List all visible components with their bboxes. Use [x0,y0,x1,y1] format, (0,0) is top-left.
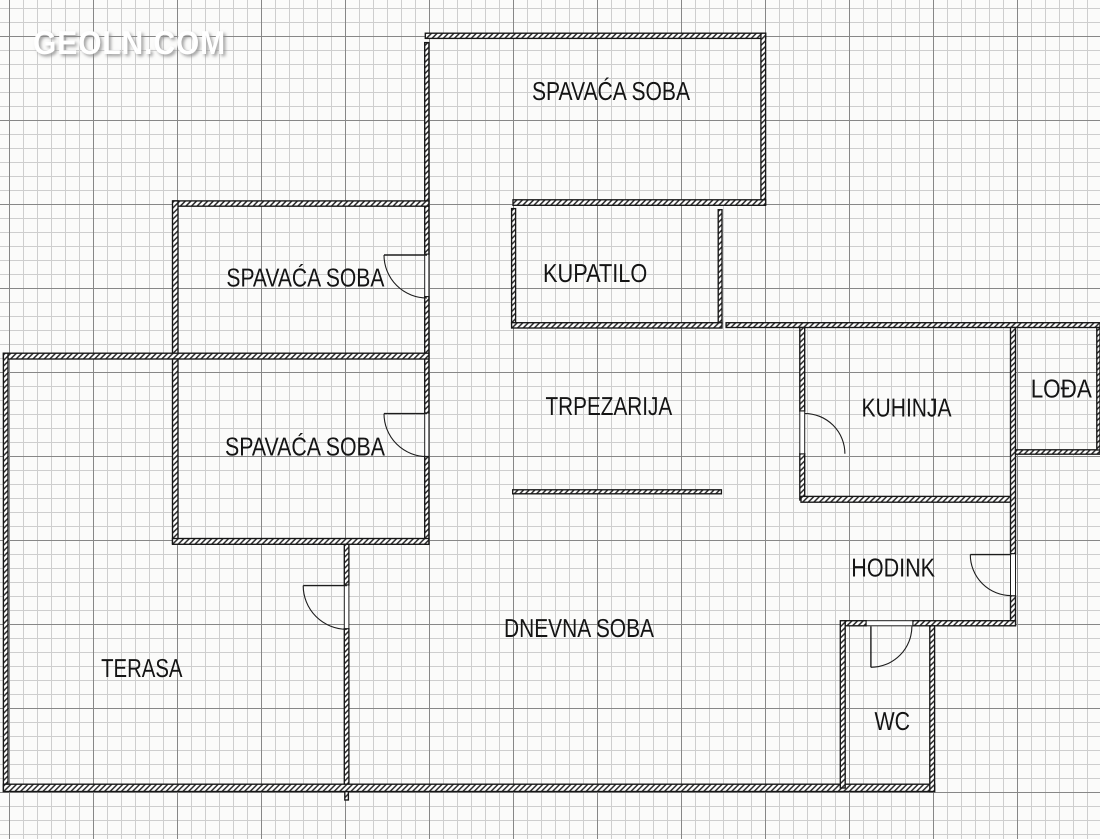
svg-text:SPAVAĆA SOBA: SPAVAĆA SOBA [226,263,385,293]
svg-text:KUPATILO: KUPATILO [543,258,647,288]
svg-text:GEOLN.COM: GEOLN.COM [33,24,226,61]
svg-text:TRPEZARIJA: TRPEZARIJA [546,391,673,421]
svg-text:SPAVAĆA SOBA: SPAVAĆA SOBA [532,76,691,106]
svg-text:DNEVNA SOBA: DNEVNA SOBA [504,613,655,643]
svg-text:LOĐA: LOĐA [1031,374,1093,404]
svg-text:SPAVAĆA SOBA: SPAVAĆA SOBA [225,432,386,462]
svg-text:WC: WC [875,706,911,736]
svg-text:TERASA: TERASA [101,653,183,683]
svg-text:KUHINJA: KUHINJA [862,392,953,422]
svg-text:HODINK: HODINK [851,552,935,582]
